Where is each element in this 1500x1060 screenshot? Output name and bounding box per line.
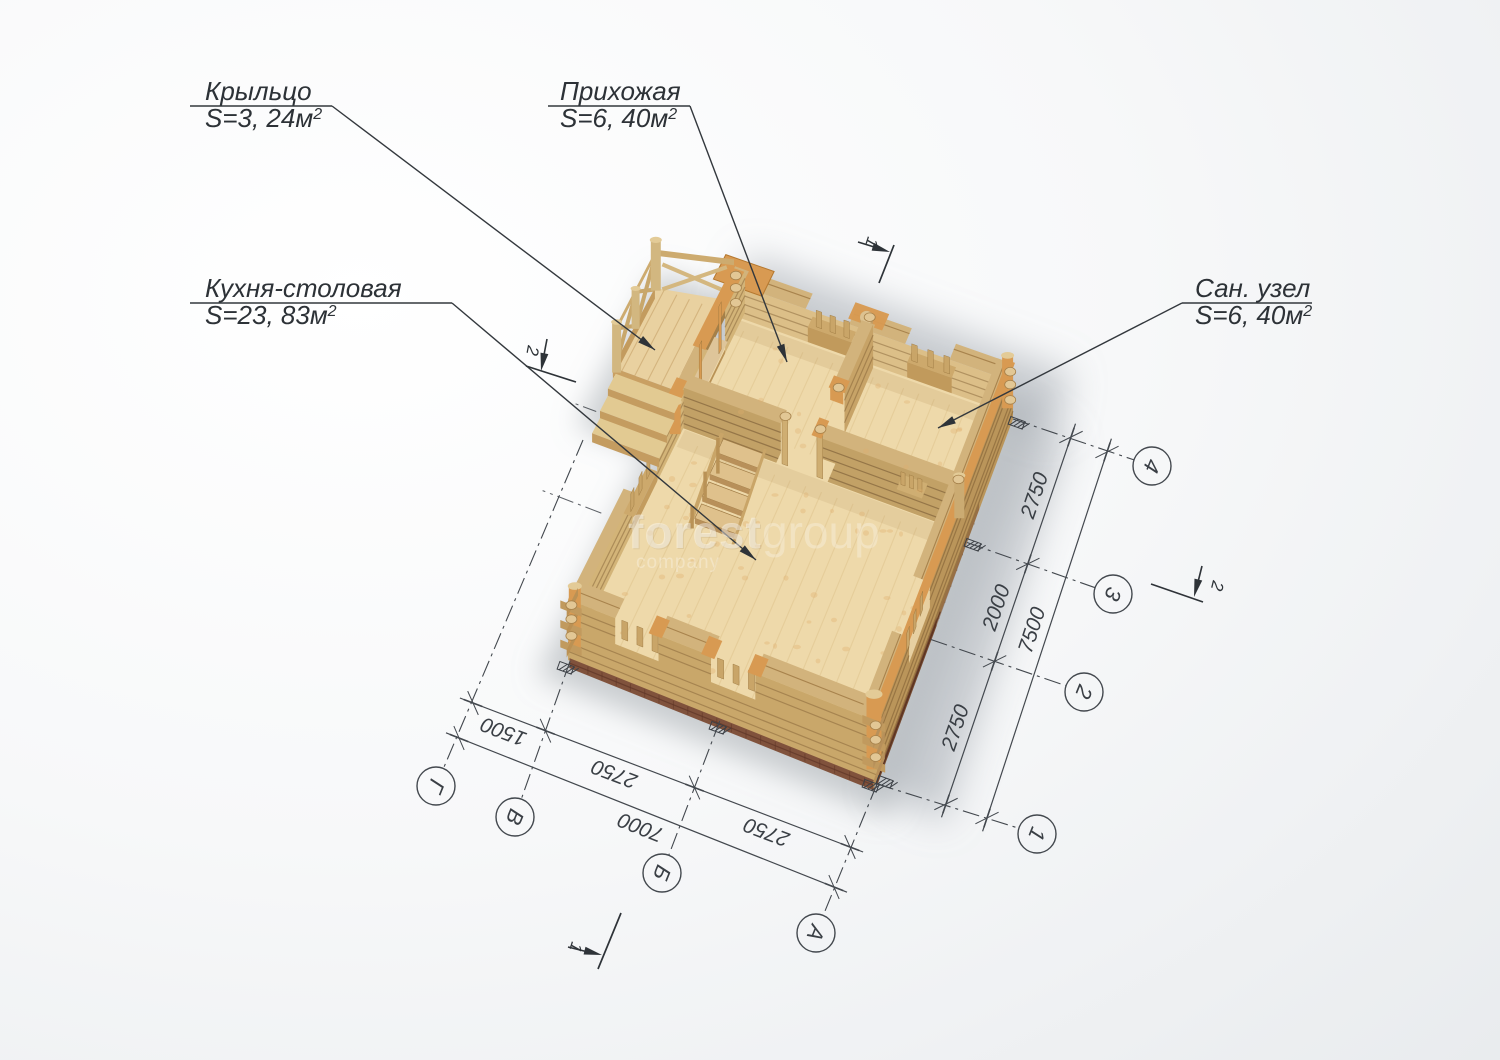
svg-text:S=23, 83м2: S=23, 83м2: [205, 300, 337, 330]
svg-text:Крыльцо: Крыльцо: [205, 76, 312, 106]
svg-text:Прихожая: Прихожая: [560, 76, 681, 106]
svg-text:company: company: [636, 552, 720, 573]
svg-text:S=6, 40м2: S=6, 40м2: [1195, 300, 1312, 330]
svg-text:Сан. узел: Сан. узел: [1195, 273, 1311, 303]
svg-text:Кухня-столовая: Кухня-столовая: [205, 273, 402, 303]
svg-text:group: group: [762, 506, 880, 558]
svg-text:forest: forest: [628, 506, 762, 558]
svg-text:S=6, 40м2: S=6, 40м2: [560, 103, 677, 133]
svg-text:S=3, 24м2: S=3, 24м2: [205, 103, 322, 133]
